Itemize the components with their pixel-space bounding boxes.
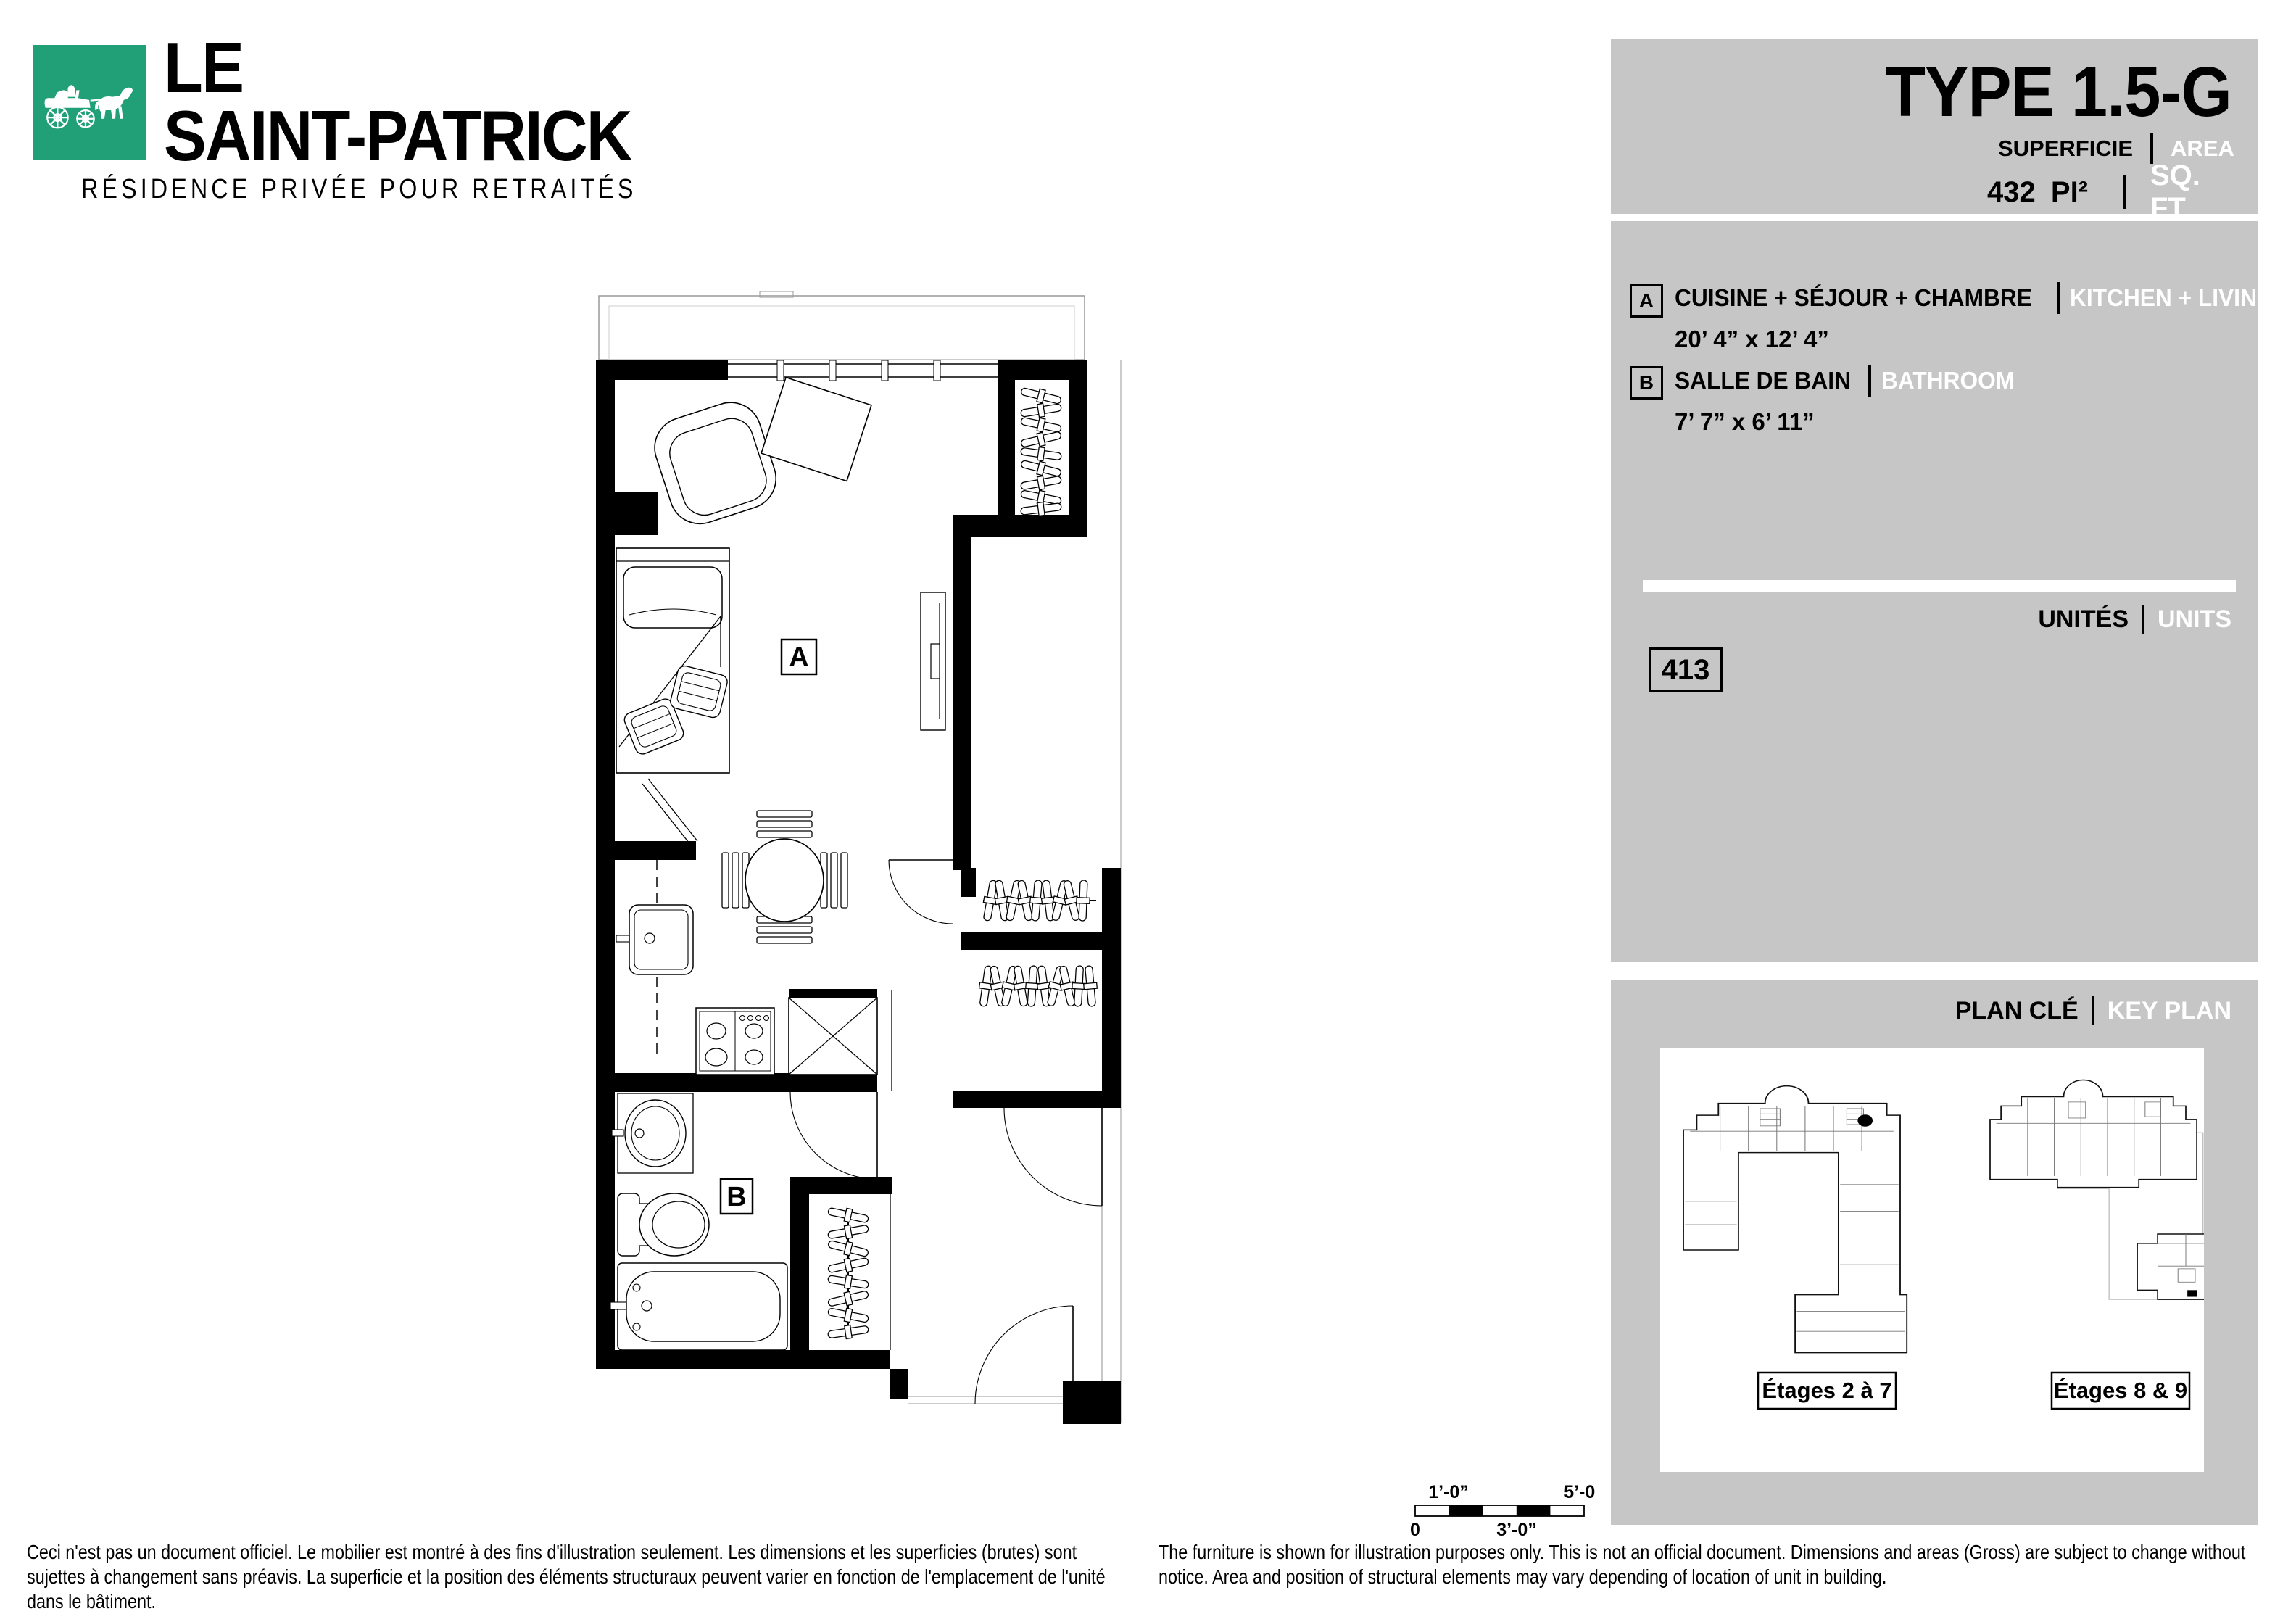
key-plan-canvas: Étages 2 à 7 Étages 8 & 9 (1660, 1048, 2204, 1472)
toilet (618, 1193, 709, 1256)
scale-bar: 1’-0” 5’-0” 0 3’-0” (1406, 1476, 1595, 1541)
legend-row-b: SALLE DE BAIN BATHROOM (1675, 363, 2021, 398)
bathroom (610, 1093, 787, 1350)
unit-location-dot (1857, 1114, 1873, 1127)
section-divider (1643, 580, 2236, 592)
floor-label-2-7: Étages 2 à 7 (1762, 1378, 1891, 1403)
room-label-a-text: A (789, 642, 808, 673)
area-label: AREA (2171, 136, 2231, 162)
room-label-b: B (721, 1179, 753, 1214)
unit-header-panel: TYPE 1.5-G SUPERFICIE AREA 432 PI² SQ. F… (1611, 39, 2258, 214)
divider-bar (2057, 282, 2060, 314)
logo-tagline: RÉSIDENCE PRIVÉE POUR RETRAITÉS (81, 174, 637, 205)
side-table (761, 378, 871, 481)
area-value: 432 PI² (1987, 176, 2088, 209)
superficie-label: SUPERFICIE (1998, 136, 2133, 162)
legend-b-dimensions: 7’ 7” x 6’ 11” (1675, 408, 1815, 436)
scale-label-1ft: 1’-0” (1428, 1482, 1469, 1502)
scale-label-5ft: 5’-0” (1564, 1482, 1595, 1502)
bathroom-sink (612, 1093, 693, 1173)
key-plan-panel: PLAN CLÉ KEY PLAN (1611, 980, 2258, 1525)
key-plan-floor-labels: Étages 2 à 7 Étages 8 & 9 (1758, 1373, 2189, 1409)
room-label-a: A (782, 640, 816, 674)
area-value-row: 432 PI² SQ. FT (1987, 174, 2231, 210)
logo-block: LE SAINT-PATRICK RÉSIDENCE PRIVÉE POUR R… (0, 0, 797, 218)
disclaimer-fr: Ceci n'est pas un document officiel. Le … (27, 1540, 1130, 1614)
floor-label-8-9: Étages 8 & 9 (2054, 1378, 2187, 1403)
legend-b-en: BATHROOM (1881, 367, 2015, 394)
legend-a-dimensions: 20’ 4” x 12’ 4” (1675, 326, 1829, 353)
legend-key-a: A (1630, 284, 1663, 318)
units-label-fr: UNITÉS (2038, 605, 2129, 634)
key-plan-building-2-7 (1683, 1086, 1907, 1353)
scale-label-3ft: 3’-0” (1496, 1520, 1537, 1540)
tv-console (921, 592, 945, 730)
stove (696, 1008, 774, 1075)
divider-bar (2092, 996, 2094, 1025)
dining-table (745, 839, 824, 922)
divider-bar (2142, 605, 2144, 634)
floor-plan: A B (573, 276, 1153, 1472)
bed (616, 548, 729, 773)
room-label-b-text: B (726, 1182, 746, 1212)
divider-bar (1868, 365, 1871, 397)
balcony (599, 291, 1085, 360)
legend-a-fr: CUISINE + SÉJOUR + CHAMBRE (1675, 284, 2032, 312)
armchair (647, 394, 784, 531)
key-plan-building-8-9 (1990, 1080, 2204, 1300)
unit-type-title: TYPE 1.5-G (1886, 57, 2231, 127)
horse-carriage-icon (41, 73, 138, 133)
logo-text-line2: SAINT-PATRICK (164, 100, 631, 171)
legend-b-fr: SALLE DE BAIN (1675, 367, 1851, 394)
units-label-en: UNITS (2158, 605, 2231, 634)
area-unit-en: SQ. FT (2150, 160, 2231, 225)
key-plan-label-en: KEY PLAN (2108, 997, 2231, 1025)
key-plan-label-fr: PLAN CLÉ (1955, 997, 2079, 1025)
legend-row-a: CUISINE + SÉJOUR + CHAMBRE KITCHEN + LIV… (1675, 281, 2296, 315)
disclaimer-en: The furniture is shown for illustration … (1159, 1540, 2274, 1589)
dining-set (722, 811, 847, 943)
logo-text-line1: LE (164, 32, 243, 103)
key-plan-label-row: PLAN CLÉ KEY PLAN (1955, 995, 2231, 1027)
window-wall (728, 360, 998, 381)
units-label-row: UNITÉS UNITS (2038, 603, 2231, 635)
bathtub (610, 1263, 787, 1350)
refrigerator (789, 989, 877, 1075)
legend-panel: A CUISINE + SÉJOUR + CHAMBRE KITCHEN + L… (1611, 221, 2258, 962)
scale-label-0: 0 (1410, 1520, 1420, 1540)
divider-bar (2123, 175, 2126, 209)
legend-a-en: KITCHEN + LIVING ROOM + BEDROOM (2070, 284, 2296, 312)
kitchen-sink (616, 905, 693, 974)
legend-key-b: B (1630, 366, 1663, 400)
unit-number-badge: 413 (1649, 647, 1723, 692)
